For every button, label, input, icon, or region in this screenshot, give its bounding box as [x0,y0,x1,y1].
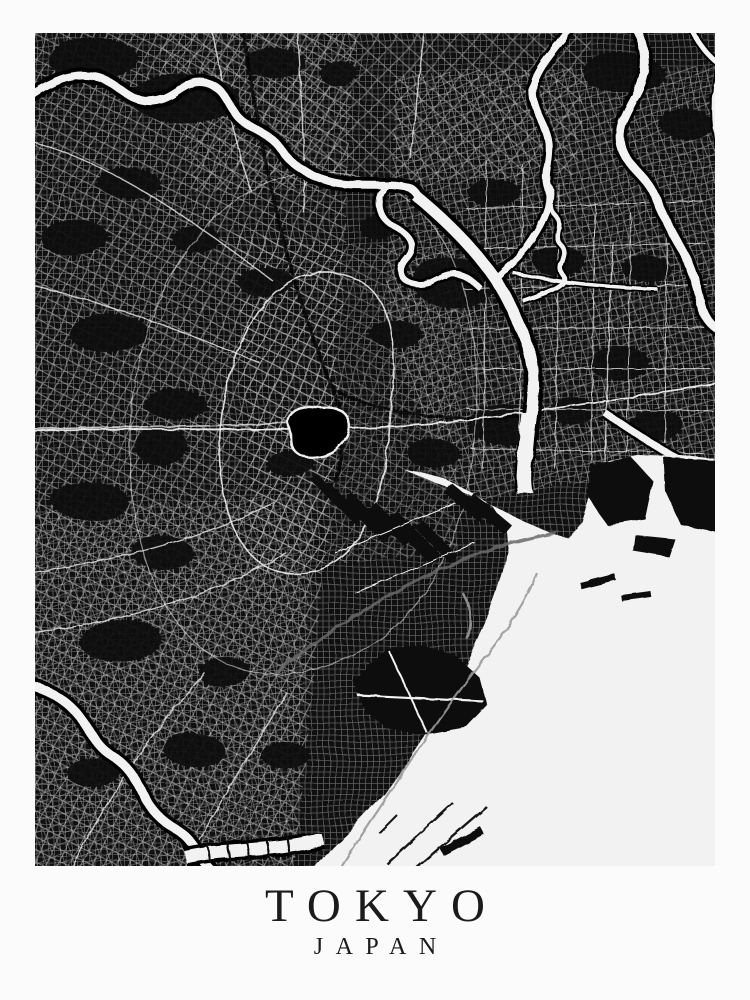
tokyo-map-graphic [35,33,715,866]
poster: TOKYO JAPAN [0,0,750,1000]
poster-subtitle: JAPAN [0,935,750,959]
tokyo-map [35,33,715,866]
poster-title: TOKYO [0,882,750,931]
title-block: TOKYO JAPAN [0,882,750,959]
